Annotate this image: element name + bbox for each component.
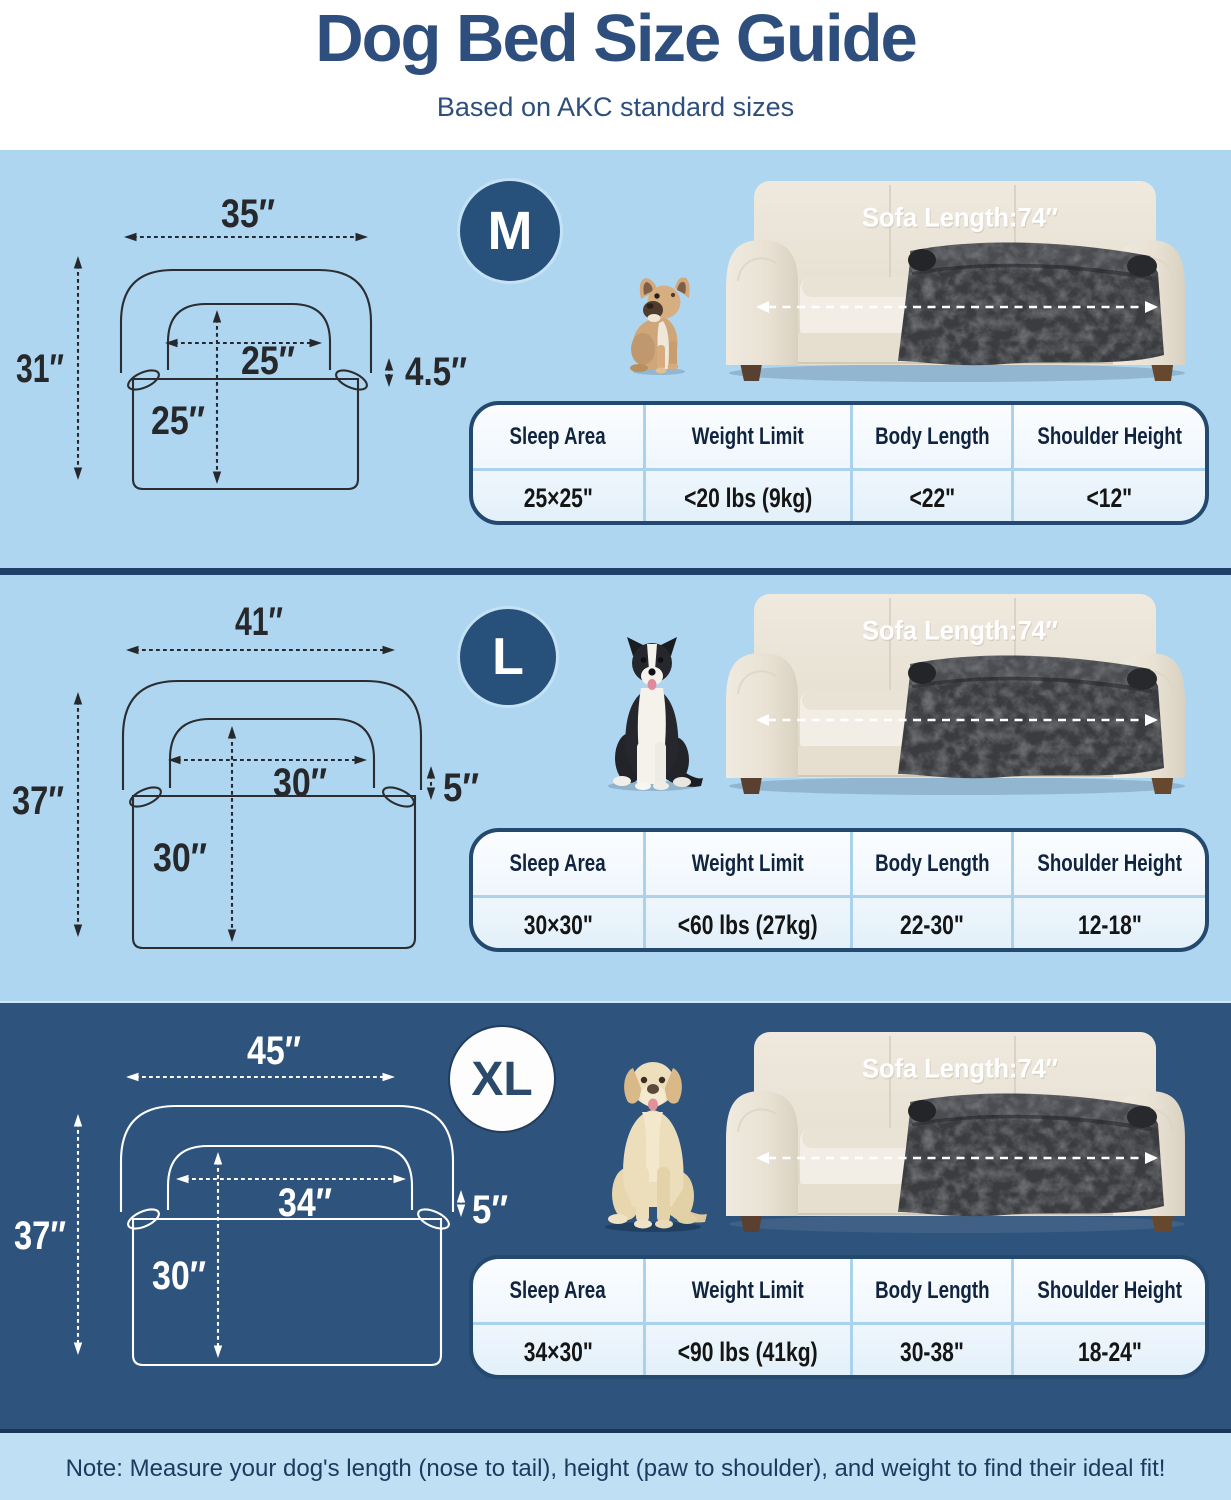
- svg-text:25″: 25″: [241, 339, 295, 383]
- svg-text:25″: 25″: [151, 399, 205, 443]
- svg-text:37″: 37″: [14, 1214, 66, 1258]
- svg-text:5″: 5″: [443, 766, 479, 810]
- svg-text:31″: 31″: [16, 347, 64, 391]
- svg-text:5″: 5″: [472, 1188, 508, 1232]
- svg-text:30″: 30″: [153, 836, 207, 880]
- svg-text:34″: 34″: [278, 1181, 332, 1225]
- svg-text:41″: 41″: [235, 600, 283, 644]
- svg-text:45″: 45″: [247, 1029, 301, 1073]
- svg-text:37″: 37″: [12, 779, 64, 823]
- svg-text:30″: 30″: [152, 1254, 206, 1298]
- svg-text:30″: 30″: [273, 761, 327, 805]
- svg-text:4.5″: 4.5″: [405, 350, 467, 394]
- svg-text:35″: 35″: [221, 192, 275, 236]
